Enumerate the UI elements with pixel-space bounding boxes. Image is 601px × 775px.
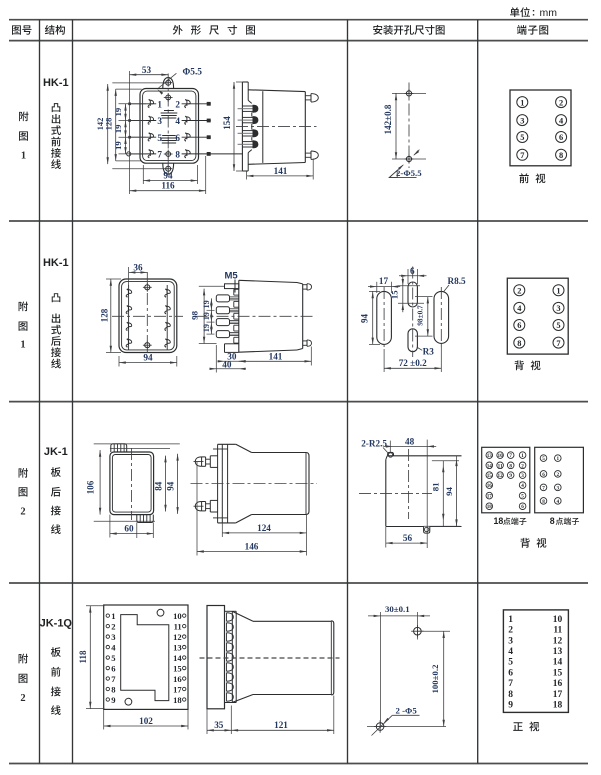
svg-text:3: 3 bbox=[556, 304, 560, 313]
svg-text:11: 11 bbox=[553, 626, 562, 636]
svg-text:7: 7 bbox=[508, 679, 513, 689]
svg-text:2: 2 bbox=[517, 286, 521, 295]
svg-text:18: 18 bbox=[173, 695, 182, 705]
svg-text:12: 12 bbox=[553, 636, 563, 646]
svg-text:1: 1 bbox=[556, 286, 560, 295]
svg-text:17: 17 bbox=[487, 494, 493, 500]
svg-text:3: 3 bbox=[508, 636, 513, 646]
svg-text:1: 1 bbox=[157, 100, 162, 110]
svg-text:4: 4 bbox=[111, 642, 116, 652]
svg-text:94: 94 bbox=[444, 487, 454, 496]
svg-text:13: 13 bbox=[173, 642, 182, 652]
svg-text:94: 94 bbox=[360, 314, 370, 324]
svg-text:6: 6 bbox=[559, 133, 563, 142]
svg-text:5: 5 bbox=[521, 494, 524, 500]
svg-text:56: 56 bbox=[403, 533, 413, 543]
svg-text:116: 116 bbox=[161, 181, 175, 191]
svg-text:128: 128 bbox=[104, 118, 113, 131]
svg-text:8: 8 bbox=[111, 684, 116, 694]
svg-text:2: 2 bbox=[521, 463, 524, 469]
svg-text:154: 154 bbox=[222, 116, 232, 130]
svg-text:12: 12 bbox=[173, 632, 182, 642]
svg-text:7: 7 bbox=[157, 150, 162, 160]
svg-text:5: 5 bbox=[508, 658, 513, 668]
svg-text:6: 6 bbox=[508, 668, 513, 678]
svg-text:19: 19 bbox=[113, 141, 123, 150]
svg-text:13: 13 bbox=[553, 647, 563, 657]
svg-text:2: 2 bbox=[20, 506, 25, 517]
svg-text:7: 7 bbox=[111, 674, 116, 684]
svg-text:3: 3 bbox=[111, 632, 115, 642]
svg-text:19: 19 bbox=[202, 312, 211, 320]
svg-text:8: 8 bbox=[550, 516, 555, 526]
svg-text:4: 4 bbox=[557, 499, 560, 505]
svg-text:7: 7 bbox=[542, 485, 545, 491]
svg-text:9: 9 bbox=[508, 701, 513, 711]
svg-text:18: 18 bbox=[494, 516, 504, 526]
svg-text:18: 18 bbox=[553, 701, 563, 711]
svg-text:19: 19 bbox=[113, 108, 123, 117]
svg-text:128: 128 bbox=[99, 308, 109, 322]
svg-text:98±0.7: 98±0.7 bbox=[415, 305, 424, 326]
svg-text:19: 19 bbox=[113, 125, 123, 134]
svg-text:5: 5 bbox=[111, 653, 115, 663]
svg-text:98: 98 bbox=[190, 310, 200, 319]
svg-text:6: 6 bbox=[517, 321, 521, 330]
svg-text:10: 10 bbox=[173, 611, 182, 621]
svg-text:1: 1 bbox=[21, 150, 26, 161]
svg-text:94: 94 bbox=[143, 353, 153, 363]
svg-text:106: 106 bbox=[85, 480, 95, 494]
svg-text::: : bbox=[532, 8, 535, 19]
svg-text:8: 8 bbox=[517, 339, 521, 348]
svg-text:2: 2 bbox=[20, 693, 25, 704]
svg-text:124: 124 bbox=[257, 523, 271, 533]
svg-text:JK-1: JK-1 bbox=[44, 446, 68, 458]
svg-text:mm: mm bbox=[540, 7, 558, 19]
svg-text:6: 6 bbox=[521, 504, 524, 510]
svg-text:118: 118 bbox=[78, 650, 88, 664]
svg-text:15: 15 bbox=[390, 291, 400, 300]
svg-text:7: 7 bbox=[520, 151, 524, 160]
svg-text:53: 53 bbox=[142, 65, 152, 75]
svg-text:60: 60 bbox=[124, 524, 134, 534]
svg-text:16: 16 bbox=[173, 674, 182, 684]
svg-text:HK-1: HK-1 bbox=[43, 77, 69, 89]
svg-text:18: 18 bbox=[487, 504, 493, 510]
svg-text:2: 2 bbox=[557, 472, 560, 478]
svg-text:1: 1 bbox=[521, 453, 524, 459]
svg-text:17: 17 bbox=[379, 276, 389, 286]
svg-text:2: 2 bbox=[175, 100, 180, 110]
svg-text:141: 141 bbox=[269, 352, 283, 362]
svg-text:84: 84 bbox=[153, 481, 163, 491]
svg-text:5: 5 bbox=[520, 133, 524, 142]
svg-text:40: 40 bbox=[222, 359, 232, 369]
svg-text:15: 15 bbox=[487, 473, 493, 479]
svg-text:1: 1 bbox=[111, 611, 115, 621]
svg-text:16: 16 bbox=[553, 679, 563, 689]
svg-text:14: 14 bbox=[487, 463, 493, 469]
svg-text:8: 8 bbox=[509, 463, 512, 469]
svg-text:1: 1 bbox=[557, 456, 560, 462]
svg-text:16: 16 bbox=[487, 483, 493, 489]
svg-text:121: 121 bbox=[274, 720, 288, 730]
svg-text:10: 10 bbox=[498, 453, 504, 459]
svg-text:12: 12 bbox=[498, 473, 504, 479]
svg-text:72 ±0.2: 72 ±0.2 bbox=[399, 358, 427, 368]
svg-text:1: 1 bbox=[508, 615, 513, 625]
svg-text:11: 11 bbox=[498, 463, 503, 469]
svg-text:JK-1Q: JK-1Q bbox=[40, 617, 73, 629]
svg-text:2 -Φ5: 2 -Φ5 bbox=[396, 706, 418, 716]
svg-text:8: 8 bbox=[559, 151, 563, 160]
svg-text:2: 2 bbox=[508, 626, 513, 636]
svg-text:4: 4 bbox=[521, 483, 524, 489]
svg-text:17: 17 bbox=[173, 684, 182, 694]
svg-text:30±0.1: 30±0.1 bbox=[385, 604, 410, 614]
svg-text:19: 19 bbox=[202, 300, 211, 308]
svg-text:8: 8 bbox=[175, 150, 180, 160]
svg-text:8: 8 bbox=[542, 499, 545, 505]
svg-text:1: 1 bbox=[20, 340, 25, 351]
svg-text:35: 35 bbox=[214, 720, 224, 730]
svg-text:7: 7 bbox=[556, 339, 560, 348]
svg-text:3: 3 bbox=[521, 473, 524, 479]
svg-text:94: 94 bbox=[166, 481, 176, 491]
svg-text:15: 15 bbox=[173, 663, 182, 673]
svg-text:HK-1: HK-1 bbox=[43, 257, 69, 269]
svg-text:146: 146 bbox=[245, 542, 259, 552]
svg-text:R3: R3 bbox=[423, 346, 435, 356]
svg-text:8: 8 bbox=[508, 690, 513, 700]
svg-text:9: 9 bbox=[111, 695, 115, 705]
svg-text:141: 141 bbox=[274, 166, 288, 176]
svg-text:81: 81 bbox=[431, 482, 441, 491]
svg-text:100±0.2: 100±0.2 bbox=[430, 664, 440, 694]
svg-text:2: 2 bbox=[559, 98, 563, 107]
svg-text:5: 5 bbox=[542, 456, 545, 462]
svg-text:3: 3 bbox=[520, 116, 524, 125]
svg-text:M5: M5 bbox=[225, 271, 239, 282]
svg-text:6: 6 bbox=[111, 663, 116, 673]
svg-text:3: 3 bbox=[557, 485, 560, 491]
svg-text:4: 4 bbox=[508, 647, 513, 657]
svg-text:48: 48 bbox=[405, 436, 415, 446]
svg-text:5: 5 bbox=[556, 321, 560, 330]
svg-text:102: 102 bbox=[139, 716, 153, 726]
svg-text:1: 1 bbox=[520, 98, 524, 107]
svg-text:9: 9 bbox=[509, 473, 512, 479]
svg-text:94: 94 bbox=[163, 171, 173, 181]
svg-text:14: 14 bbox=[553, 658, 563, 668]
svg-text:10: 10 bbox=[553, 615, 563, 625]
svg-text:142±0.8: 142±0.8 bbox=[383, 104, 393, 134]
svg-text:11: 11 bbox=[174, 621, 182, 631]
svg-text:19: 19 bbox=[202, 324, 211, 332]
svg-text:2: 2 bbox=[111, 621, 115, 631]
svg-text:2-R2.5: 2-R2.5 bbox=[361, 439, 387, 449]
svg-text:Φ5.5: Φ5.5 bbox=[183, 68, 203, 78]
svg-text:17: 17 bbox=[553, 690, 563, 700]
svg-text:2-Φ5.5: 2-Φ5.5 bbox=[396, 168, 422, 178]
svg-text:R8.5: R8.5 bbox=[448, 276, 467, 286]
svg-text:13: 13 bbox=[487, 453, 493, 459]
svg-text:7: 7 bbox=[509, 453, 512, 459]
svg-text:6: 6 bbox=[542, 472, 545, 478]
svg-text:6: 6 bbox=[410, 266, 415, 276]
svg-text:15: 15 bbox=[553, 668, 563, 678]
svg-text:36: 36 bbox=[133, 262, 143, 272]
svg-text:14: 14 bbox=[173, 653, 182, 663]
